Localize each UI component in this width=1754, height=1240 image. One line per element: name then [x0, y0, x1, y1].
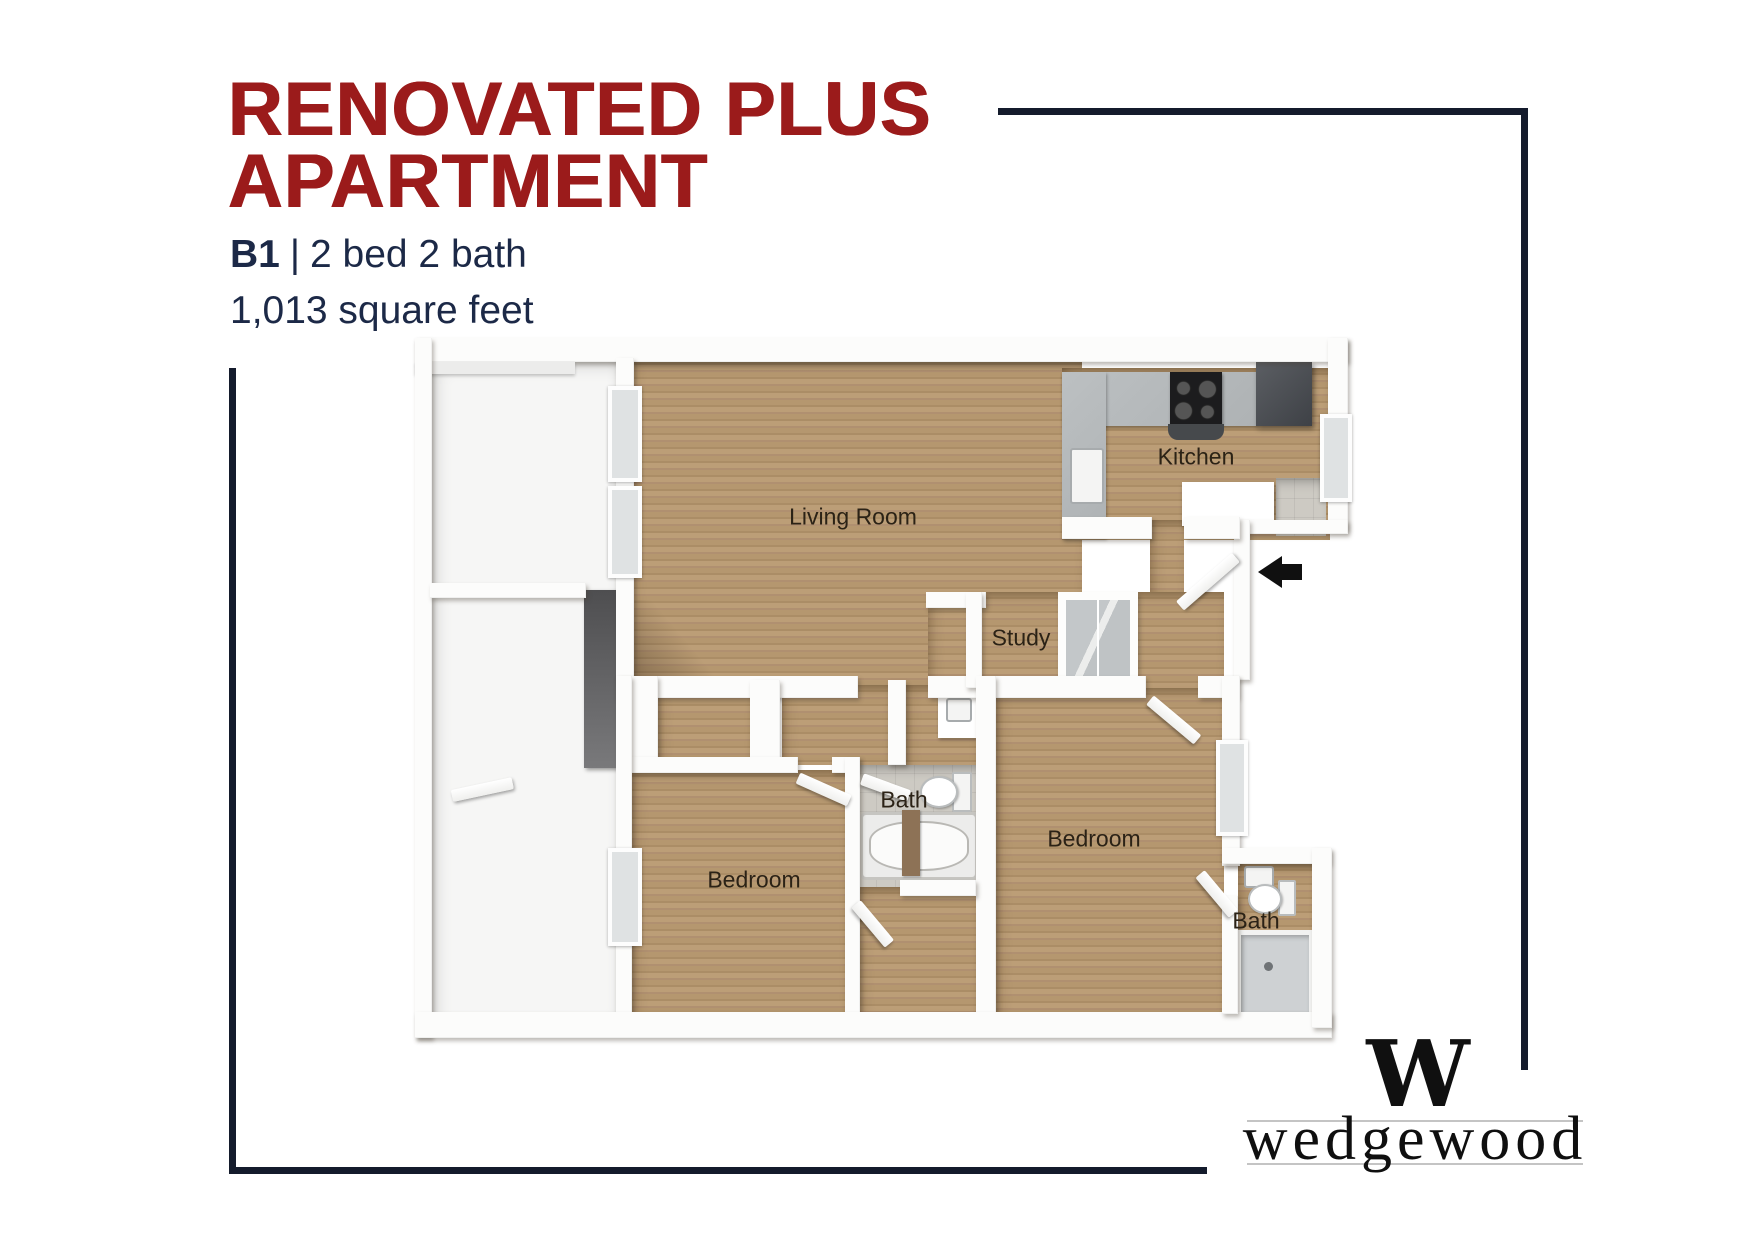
bedroom-right-window [1216, 740, 1248, 836]
wall-middle-center [928, 676, 1146, 698]
label-study: Study [992, 625, 1051, 652]
beds-baths: 2 bed 2 bath [310, 233, 527, 276]
wall-bath-ensuite-right [1312, 848, 1332, 1028]
wall-bath-main-bottom [900, 880, 976, 896]
entry-arrow-icon [1258, 556, 1304, 588]
label-kitchen: Kitchen [1158, 444, 1235, 471]
wall-study-side [966, 592, 982, 688]
range-hood [1168, 424, 1224, 440]
wall-hall-divider [888, 680, 906, 765]
entry-arrow-tail [1281, 564, 1302, 580]
living-room-window-lower [608, 486, 642, 578]
wall-kitchen-bottom-left [1062, 517, 1152, 539]
wall-patio-middle [430, 583, 586, 598]
page-title: RENOVATED PLUS APARTMENT [228, 74, 932, 218]
frame-bottom-left-horizontal [229, 1167, 1207, 1174]
kitchen-window [1320, 414, 1352, 502]
wedgewood-wordmark: wedgewood [1240, 1108, 1590, 1170]
wall-kitchen-bottom-right [1184, 517, 1240, 539]
wall-outer-left [415, 338, 432, 1038]
kitchen-sink [1070, 448, 1104, 504]
wall-entry [1234, 520, 1250, 680]
study-closet-door-divider [1097, 600, 1099, 678]
entry-arrow-head [1258, 556, 1282, 588]
wall-entry-recess-top [1240, 520, 1348, 534]
wall-bottom [415, 1012, 1332, 1038]
refrigerator [1256, 362, 1312, 426]
unit-code: B1 [230, 233, 280, 276]
flyer-page: RENOVATED PLUS APARTMENT B1|2 bed 2 bath… [0, 0, 1754, 1240]
frame-top-right-vertical [1521, 108, 1528, 1070]
wall-bath-main-right [976, 676, 996, 1016]
frame-top-right-horizontal [998, 108, 1528, 115]
square-feet: 1,013 square feet [230, 288, 534, 334]
patio-dark-panel [584, 590, 618, 768]
bathtub-caddy [902, 810, 920, 876]
wall-closet-divider [750, 680, 780, 760]
bedroom-left-window [608, 848, 642, 946]
label-bedroom-left: Bedroom [707, 867, 800, 894]
unit-spec-line: B1|2 bed 2 bath [230, 232, 527, 278]
wall-closet-left [630, 676, 658, 766]
spec-divider: | [280, 233, 310, 276]
wall-top [415, 338, 1348, 362]
label-bath-ensuite: Bath [1232, 908, 1279, 935]
wall-top-ledge [415, 362, 575, 374]
shower-drain [1264, 962, 1273, 971]
bath-corridor-floor [858, 887, 978, 1015]
page-title-line1: RENOVATED PLUS [228, 74, 932, 146]
label-bath-main: Bath [880, 787, 927, 814]
bath-main-sink [946, 698, 972, 722]
shower-stall [1236, 930, 1314, 1018]
label-bedroom-right: Bedroom [1047, 826, 1140, 853]
frame-bottom-left-vertical [229, 368, 236, 1174]
stove-cooktop [1170, 372, 1222, 426]
label-living-room: Living Room [789, 504, 917, 531]
wall-closet-bottom-left [630, 757, 798, 773]
page-title-line2: APARTMENT [228, 146, 932, 218]
living-room-window-upper [608, 386, 642, 482]
